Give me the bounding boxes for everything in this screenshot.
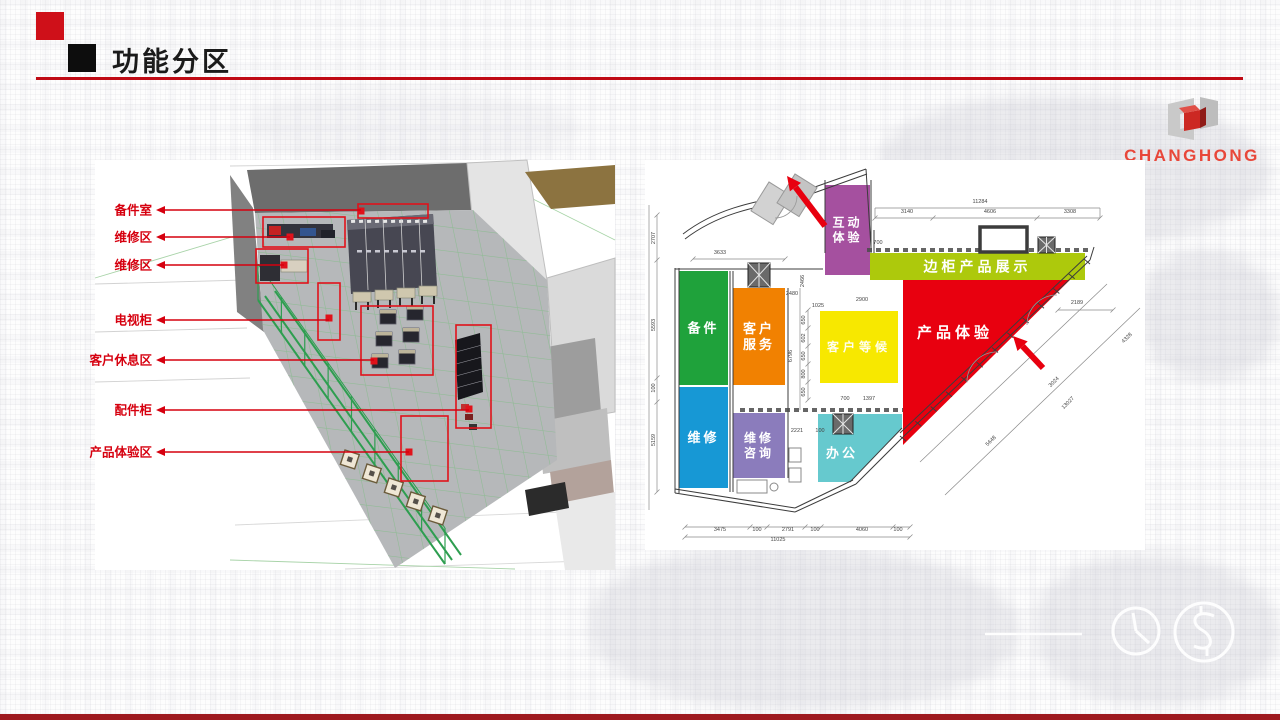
clock-icon bbox=[1113, 608, 1159, 654]
svg-text:维修: 维修 bbox=[687, 430, 719, 445]
svg-text:客户: 客户 bbox=[743, 321, 775, 336]
render-3d-figure: 备件室维修区维修区电视柜客户休息区配件柜产品体验区 bbox=[95, 160, 615, 570]
bottom-accent-bar bbox=[0, 714, 1280, 720]
svg-text:办公: 办公 bbox=[826, 446, 858, 461]
page-title: 功能分区 bbox=[112, 40, 232, 79]
render-3d-sketch: 备件室维修区维修区电视柜客户休息区配件柜产品体验区 bbox=[88, 160, 669, 629]
svg-text:互动: 互动 bbox=[832, 216, 862, 230]
svg-text:2189: 2189 bbox=[1071, 300, 1083, 306]
svg-text:2221: 2221 bbox=[791, 428, 803, 434]
svg-text:边柜产品展示: 边柜产品展示 bbox=[923, 258, 1032, 274]
svg-text:备件室: 备件室 bbox=[113, 203, 152, 218]
watermark-icons bbox=[960, 590, 1260, 690]
svg-text:100: 100 bbox=[815, 428, 824, 434]
svg-text:2791: 2791 bbox=[782, 527, 794, 533]
svg-text:5159: 5159 bbox=[651, 434, 657, 446]
svg-text:650: 650 bbox=[801, 315, 807, 324]
svg-text:700: 700 bbox=[840, 396, 849, 402]
svg-text:服务: 服务 bbox=[743, 337, 775, 352]
svg-text:体验: 体验 bbox=[832, 230, 862, 245]
svg-text:配件柜: 配件柜 bbox=[114, 403, 152, 418]
svg-text:备件: 备件 bbox=[686, 321, 719, 336]
svg-text:维修: 维修 bbox=[744, 430, 774, 445]
svg-text:2900: 2900 bbox=[856, 297, 868, 303]
svg-text:电视柜: 电视柜 bbox=[114, 313, 152, 328]
floorplan-panel: 互动体验产品体验边柜产品展示备件客户服务客户等候维修维修咨询办公11284314… bbox=[645, 160, 1145, 550]
svg-text:产品体验区: 产品体验区 bbox=[89, 445, 152, 460]
svg-text:650: 650 bbox=[801, 387, 807, 396]
map-blob bbox=[1140, 250, 1280, 380]
svg-text:维修区: 维修区 bbox=[114, 258, 152, 273]
svg-text:3140: 3140 bbox=[901, 209, 913, 215]
svg-text:100: 100 bbox=[752, 527, 761, 533]
svg-text:4060: 4060 bbox=[856, 527, 868, 533]
svg-text:11284: 11284 bbox=[973, 199, 988, 205]
title-black-square bbox=[68, 44, 96, 72]
svg-text:1025: 1025 bbox=[812, 303, 824, 309]
svg-text:650: 650 bbox=[801, 351, 807, 360]
floorplan-figure: 互动体验产品体验边柜产品展示备件客户服务客户等候维修维修咨询办公11284314… bbox=[645, 160, 1145, 550]
svg-text:602: 602 bbox=[801, 333, 807, 342]
map-blob bbox=[250, 92, 580, 162]
svg-text:客户等候: 客户等候 bbox=[826, 339, 891, 354]
svg-text:100: 100 bbox=[651, 383, 657, 392]
svg-text:维修区: 维修区 bbox=[114, 230, 152, 245]
dollar-icon bbox=[1175, 603, 1233, 661]
render-3d-panel: 备件室维修区维修区电视柜客户休息区配件柜产品体验区 bbox=[95, 160, 615, 570]
svg-text:11025: 11025 bbox=[771, 537, 786, 543]
svg-text:2466: 2466 bbox=[800, 275, 806, 287]
svg-text:1397: 1397 bbox=[863, 396, 875, 402]
svg-text:800: 800 bbox=[801, 369, 807, 378]
title-underline bbox=[36, 77, 1243, 80]
svg-text:3475: 3475 bbox=[714, 527, 726, 533]
svg-text:100: 100 bbox=[893, 527, 902, 533]
changhong-logo: CHANGHONG bbox=[1122, 96, 1262, 168]
svg-text:13027: 13027 bbox=[1061, 396, 1076, 411]
svg-text:6796: 6796 bbox=[788, 350, 794, 362]
svg-text:3633: 3633 bbox=[714, 250, 726, 256]
svg-text:客户休息区: 客户休息区 bbox=[88, 353, 152, 368]
title-red-square bbox=[36, 12, 64, 40]
svg-text:产品体验: 产品体验 bbox=[917, 323, 993, 341]
svg-text:5593: 5593 bbox=[651, 319, 657, 331]
svg-text:4606: 4606 bbox=[984, 209, 996, 215]
svg-text:3308: 3308 bbox=[1064, 209, 1076, 215]
svg-text:700: 700 bbox=[873, 240, 882, 246]
floorplan-sketch: 互动体验产品体验边柜产品展示备件客户服务客户等候维修维修咨询办公11284314… bbox=[649, 169, 1140, 543]
slide-background: 功能分区 CHANGHONG 备件室维修区维修区电视柜客户休息区配件柜产品体验区… bbox=[0, 0, 1280, 720]
svg-text:咨询: 咨询 bbox=[744, 445, 774, 460]
svg-text:4328: 4328 bbox=[1121, 332, 1134, 345]
svg-text:2707: 2707 bbox=[651, 232, 657, 244]
svg-text:2480: 2480 bbox=[786, 291, 798, 297]
map-blob bbox=[590, 545, 1020, 710]
svg-text:3024: 3024 bbox=[1048, 376, 1061, 389]
svg-text:100: 100 bbox=[810, 527, 819, 533]
zone-产品体验 bbox=[903, 273, 1077, 445]
changhong-logo-mark bbox=[1122, 96, 1262, 144]
